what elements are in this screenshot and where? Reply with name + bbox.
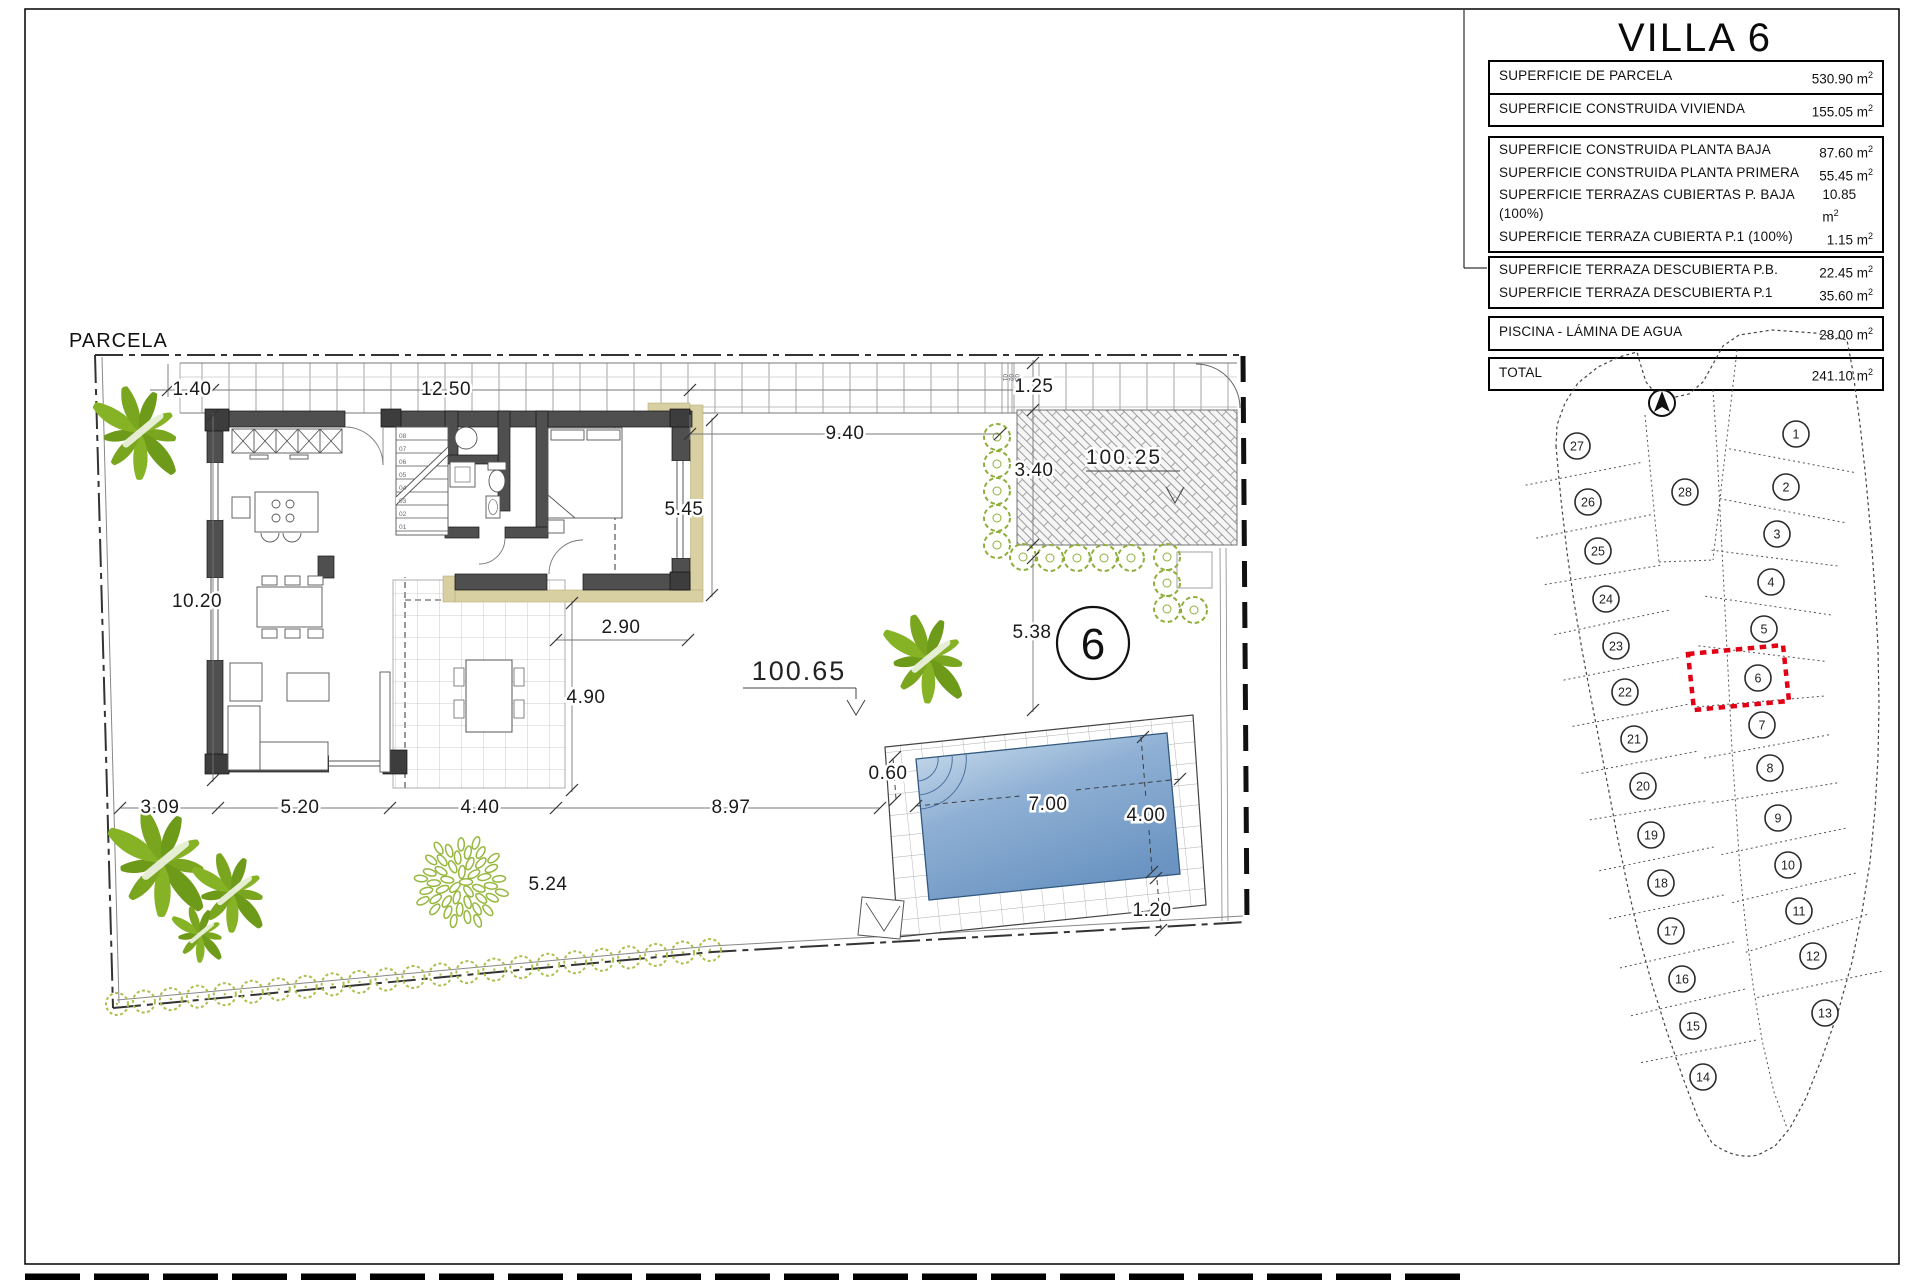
map-lot-4: 4 — [1758, 569, 1784, 595]
dimension-label: 4.00 — [1127, 805, 1166, 826]
villa-number-marker: 6 — [1057, 607, 1129, 679]
dimension-label: 5.24 — [529, 874, 568, 895]
dimension-label: 4.40 — [461, 797, 500, 818]
map-lot-11: 11 — [1786, 898, 1812, 924]
map-lot-20: 20 — [1630, 773, 1656, 799]
map-lot-5: 5 — [1751, 616, 1777, 642]
svg-text:4: 4 — [1768, 576, 1775, 590]
svg-text:21: 21 — [1627, 733, 1641, 747]
bush-icon — [1154, 570, 1180, 596]
map-lot-18: 18 — [1648, 870, 1674, 896]
svg-text:20: 20 — [1636, 780, 1650, 794]
parcela-label: PARCELA — [69, 330, 168, 352]
dimension-label: 8.97 — [712, 797, 751, 818]
svg-text:14: 14 — [1696, 1071, 1710, 1085]
map-lot-10: 10 — [1775, 852, 1801, 878]
map-lot-separators — [1525, 449, 1882, 1063]
bush-icon — [984, 505, 1010, 531]
bush-icon — [984, 451, 1010, 477]
bush-icon — [1010, 544, 1036, 570]
bush-icon — [1181, 597, 1207, 623]
location-map: 2726252423222120191817161514281234567891… — [1525, 330, 1882, 1156]
map-lot-14: 14 — [1690, 1064, 1716, 1090]
svg-text:8: 8 — [1767, 762, 1774, 776]
bedroom-furniture — [548, 428, 622, 533]
map-lot-22: 22 — [1612, 679, 1638, 705]
level-label: 100.25 — [1086, 446, 1162, 469]
svg-text:13: 13 — [1818, 1007, 1832, 1021]
terrace-grid — [393, 580, 565, 788]
map-lot-9: 9 — [1765, 805, 1791, 831]
stair-step-label: 01 — [399, 524, 407, 531]
bush-icon — [1064, 545, 1090, 571]
svg-text:18: 18 — [1654, 877, 1668, 891]
svg-text:7: 7 — [1759, 719, 1766, 733]
dimension-label: 7.00 — [1029, 794, 1068, 815]
map-lot-24: 24 — [1593, 586, 1619, 612]
svg-text:5: 5 — [1761, 623, 1768, 637]
map-lot-25: 25 — [1585, 538, 1611, 564]
map-lot28-lines — [1645, 350, 1737, 562]
dimension-label: 5.38 — [1013, 622, 1052, 643]
svg-text:3: 3 — [1774, 528, 1781, 542]
svg-text:23: 23 — [1609, 640, 1623, 654]
bush-icon — [984, 532, 1010, 558]
kitchen — [232, 429, 342, 542]
svg-text:1: 1 — [1793, 428, 1800, 442]
stair-step-label: 08 — [399, 433, 407, 440]
floor-plan-canvas: 1.4012.509.401.253.405.4510.202.905.383.… — [0, 0, 1920, 1280]
map-lot-6: 6 — [1745, 665, 1771, 691]
bathroom-fixtures — [450, 427, 506, 518]
dimension-label: 3.40 — [1015, 460, 1054, 481]
dimension-label: 9.40 — [826, 423, 865, 444]
bush-icon — [1118, 545, 1144, 571]
map-lot-19: 19 — [1638, 822, 1664, 848]
dimension-label: 1.20 — [1133, 900, 1172, 921]
svg-text:22: 22 — [1618, 686, 1632, 700]
bush-icon — [1154, 596, 1180, 622]
map-lot-12: 12 — [1800, 943, 1826, 969]
svg-text:26: 26 — [1581, 496, 1595, 510]
map-lot-28: 28 — [1672, 479, 1698, 505]
level-label: 100.65 — [752, 656, 847, 686]
stairs — [396, 427, 448, 535]
svg-text:28: 28 — [1678, 486, 1692, 500]
map-lot-3: 3 — [1764, 521, 1790, 547]
stair-step-label: 04 — [399, 485, 407, 492]
planter — [1177, 552, 1212, 588]
north-compass-icon — [1649, 390, 1675, 416]
map-lot-15: 15 — [1680, 1013, 1706, 1039]
map-lot-21: 21 — [1621, 726, 1647, 752]
bush-icon — [1091, 545, 1117, 571]
shrub-icon — [414, 836, 509, 928]
svg-text:12: 12 — [1806, 950, 1820, 964]
svg-text:10: 10 — [1781, 859, 1795, 873]
bush-icon — [1154, 544, 1180, 570]
map-lot-2: 2 — [1773, 474, 1799, 500]
svg-text:2: 2 — [1783, 481, 1790, 495]
svg-text:15: 15 — [1686, 1020, 1700, 1034]
svg-text:16: 16 — [1675, 973, 1689, 987]
map-lot-7: 7 — [1749, 712, 1775, 738]
bush-icon — [1037, 545, 1063, 571]
palm-tree-icon — [880, 613, 966, 704]
dimension-label: 2.90 — [602, 617, 641, 638]
dimension-label: 10.20 — [172, 591, 222, 612]
entry-walkway — [180, 363, 1237, 413]
palm-tree-icon — [104, 807, 209, 917]
bush-icon — [984, 478, 1010, 504]
dimension-label: 5.20 — [281, 797, 320, 818]
map-lot-8: 8 — [1757, 755, 1783, 781]
dimension-label: 4.90 — [567, 687, 606, 708]
svg-text:6: 6 — [1755, 672, 1762, 686]
map-lot-16: 16 — [1669, 966, 1695, 992]
stair-step-label: 02 — [399, 511, 407, 518]
svg-text:11: 11 — [1793, 905, 1806, 919]
stair-step-label: 05 — [399, 472, 407, 479]
stair-step-label: 06 — [399, 459, 407, 466]
dimension-label: 12.50 — [421, 379, 471, 400]
svg-text:27: 27 — [1570, 440, 1584, 454]
walkway-step-label: 02 — [1007, 374, 1014, 382]
pool-step — [858, 897, 904, 939]
living-furniture — [228, 663, 390, 772]
map-lot-1: 1 — [1783, 421, 1809, 447]
svg-text:25: 25 — [1591, 545, 1605, 559]
dimension-label: 1.40 — [173, 379, 212, 400]
svg-text:24: 24 — [1599, 593, 1613, 607]
stair-step-label: 03 — [399, 498, 407, 505]
svg-text:9: 9 — [1775, 812, 1782, 826]
map-lot-13: 13 — [1812, 1000, 1838, 1026]
map-outer-boundary — [1556, 330, 1879, 1156]
drawing-sheet: { "title": "VILLA 6", "plan": { "parcela… — [0, 0, 1920, 1280]
dimension-label: 3.09 — [141, 797, 180, 818]
svg-text:17: 17 — [1664, 925, 1678, 939]
map-lot-26: 26 — [1575, 489, 1601, 515]
svg-text:19: 19 — [1644, 829, 1658, 843]
walkway-step-label: 01 — [1001, 374, 1008, 382]
map-lot-17: 17 — [1658, 918, 1684, 944]
svg-text:6: 6 — [1081, 620, 1105, 669]
dimension-label: 0.60 — [869, 763, 908, 784]
map-lot-23: 23 — [1603, 633, 1629, 659]
walkway-step-label: 03 — [1013, 374, 1020, 382]
dining-set — [257, 576, 323, 638]
map-lot-27: 27 — [1564, 433, 1590, 459]
dimension-label: 5.45 — [665, 499, 704, 520]
stair-step-label: 07 — [399, 446, 407, 453]
